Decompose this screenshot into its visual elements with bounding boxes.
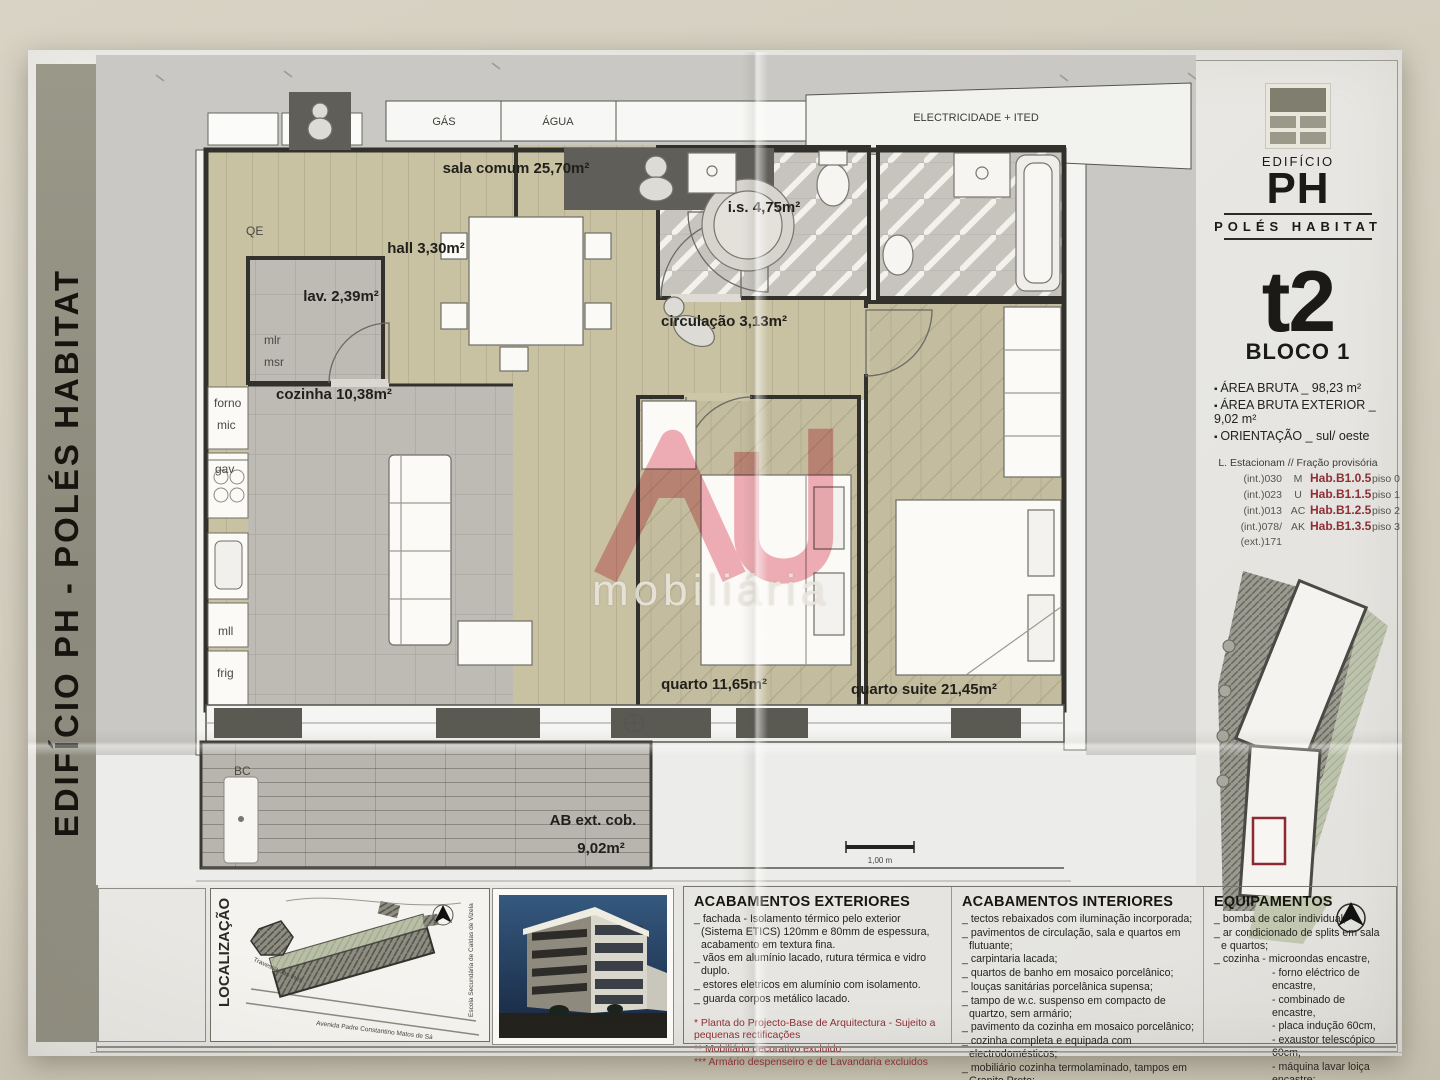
circulacao-label: circulação 3,13m²: [661, 313, 787, 330]
parking-row: (int.)023 U Hab.B1.1.5 piso 1: [1200, 487, 1396, 503]
suite-label: quarto suite 21,45m²: [851, 681, 997, 698]
lav-label: lav. 2,39m²: [303, 288, 379, 305]
street2-label: Avenida Padre Constantino Matos de Sá: [316, 1020, 434, 1039]
int-title: ACABAMENTOS INTERIORES: [962, 894, 1195, 910]
area-bullets: ÁREA BRUTA _ 98,23 m² ÁREA BRUTA EXTERIO…: [1214, 381, 1396, 443]
cozinha-label: cozinha 10,38m²: [276, 386, 392, 403]
parking-row: (int.)030 M Hab.B1.0.5 piso 0: [1200, 471, 1396, 487]
parking-table: L. Estacionam // Fração provisória (int.…: [1200, 457, 1396, 550]
mic-label: mic: [217, 418, 236, 432]
building-photo: [492, 888, 674, 1045]
floor-plan: GÁS ÁGUA ELECTRICIDADE + ITED: [96, 55, 1196, 885]
forno-label: forno: [214, 396, 242, 410]
typology: t2: [1200, 266, 1396, 339]
block-label: BLOCO 1: [1200, 339, 1396, 365]
qe-label: QE: [246, 224, 263, 238]
suite-wardrobe: [1004, 307, 1061, 477]
terrace-label-1: AB ext. cob.: [550, 812, 637, 829]
localizacao-panel: LOCALIZAÇÃO Travessa das Inês Avenida Pa…: [210, 888, 490, 1042]
bedroom-wardrobe: [642, 401, 696, 469]
building-title: EDIFÍCIO PH - POLÉS HABITAT: [48, 268, 86, 837]
sheet-edge-line-2: [90, 1052, 1402, 1053]
dining-table: [469, 217, 583, 345]
orientacao: ORIENTAÇÃO _ sul/ oeste: [1214, 429, 1396, 443]
agua-label: ÁGUA: [542, 115, 574, 128]
elec-label: ELECTRICIDADE + ITED: [913, 112, 1039, 124]
specs-text-area: ACABAMENTOS EXTERIORES _ fachada - Isola…: [683, 886, 1397, 1044]
highlighted-unit: [1253, 818, 1285, 864]
sofa: [389, 455, 451, 645]
brand-big: PH: [1200, 169, 1396, 209]
coffee-table: [458, 621, 532, 665]
ext-title: ACABAMENTOS EXTERIORES: [694, 894, 943, 910]
blank-panel: [98, 888, 206, 1042]
area-bruta: ÁREA BRUTA _ 98,23 m²: [1214, 381, 1396, 395]
gas-label: GÁS: [432, 115, 455, 128]
acabamentos-interiores: ACABAMENTOS INTERIORES _ tectos rebaixad…: [952, 887, 1204, 1043]
vertical-title-bar: EDIFÍCIO PH - POLÉS HABITAT: [36, 64, 98, 1042]
mlr-label: mlr: [264, 333, 281, 347]
window-band: [206, 705, 1064, 742]
msr-label: msr: [264, 355, 284, 369]
is-label: i.s. 4,75m²: [728, 199, 801, 216]
kitchen-column: [208, 387, 248, 710]
area-bruta-ext: ÁREA BRUTA EXTERIOR _ 9,02 m²: [1214, 398, 1396, 426]
parking-row: (int.)013 AC Hab.B1.2.5 piso 2: [1200, 503, 1396, 519]
hall-label: hall 3,30m²: [387, 240, 465, 257]
equipamentos: EQUIPAMENTOS _ bomba de calor individual…: [1204, 887, 1394, 1043]
mll-label: mll: [218, 624, 233, 638]
frig-label: frig: [217, 666, 234, 680]
ph-logo-icon: [1266, 84, 1330, 148]
photographed-plan-sheet: EDIFÍCIO PH - POLÉS HABITAT: [0, 0, 1440, 1080]
localizacao-label: LOCALIZAÇÃO: [215, 898, 233, 1007]
gav-label: gav: [215, 462, 234, 476]
equip-title: EQUIPAMENTOS: [1214, 894, 1386, 910]
acabamentos-exteriores: ACABAMENTOS EXTERIORES _ fachada - Isola…: [684, 887, 952, 1043]
terrace-label-2: 9,02m²: [577, 840, 625, 857]
scale-label: 1,00 m: [868, 856, 893, 865]
sala-label: sala comum 25,70m²: [443, 160, 590, 177]
parking-header: L. Estacionam // Fração provisória: [1200, 457, 1396, 469]
brand-sub: POLÉS HABITAT: [1200, 219, 1396, 234]
school-label: Escola Secundária de Caldas de Vizela: [468, 903, 475, 1017]
quarto-label: quarto 11,65m²: [661, 676, 767, 693]
bc-label: BC: [234, 764, 251, 778]
sheet-edge-line: [96, 1046, 1396, 1048]
parking-row: (int.)078/ (ext.)171 AK Hab.B1.3.5 piso …: [1200, 519, 1396, 550]
